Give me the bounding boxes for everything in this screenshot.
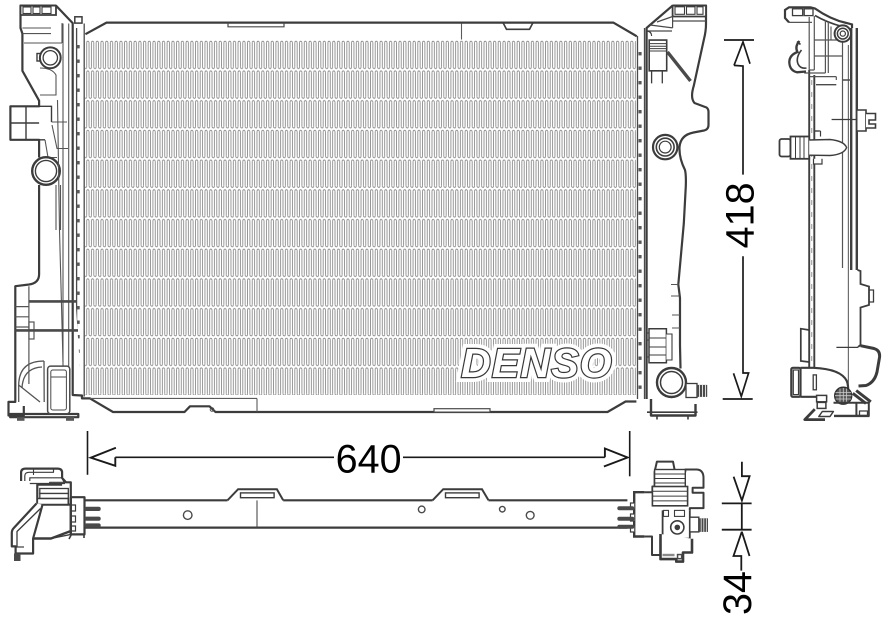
svg-text:DENSO: DENSO [461, 340, 613, 386]
svg-text:34: 34 [716, 571, 760, 615]
svg-text:418: 418 [719, 182, 763, 248]
svg-text:640: 640 [336, 437, 402, 481]
